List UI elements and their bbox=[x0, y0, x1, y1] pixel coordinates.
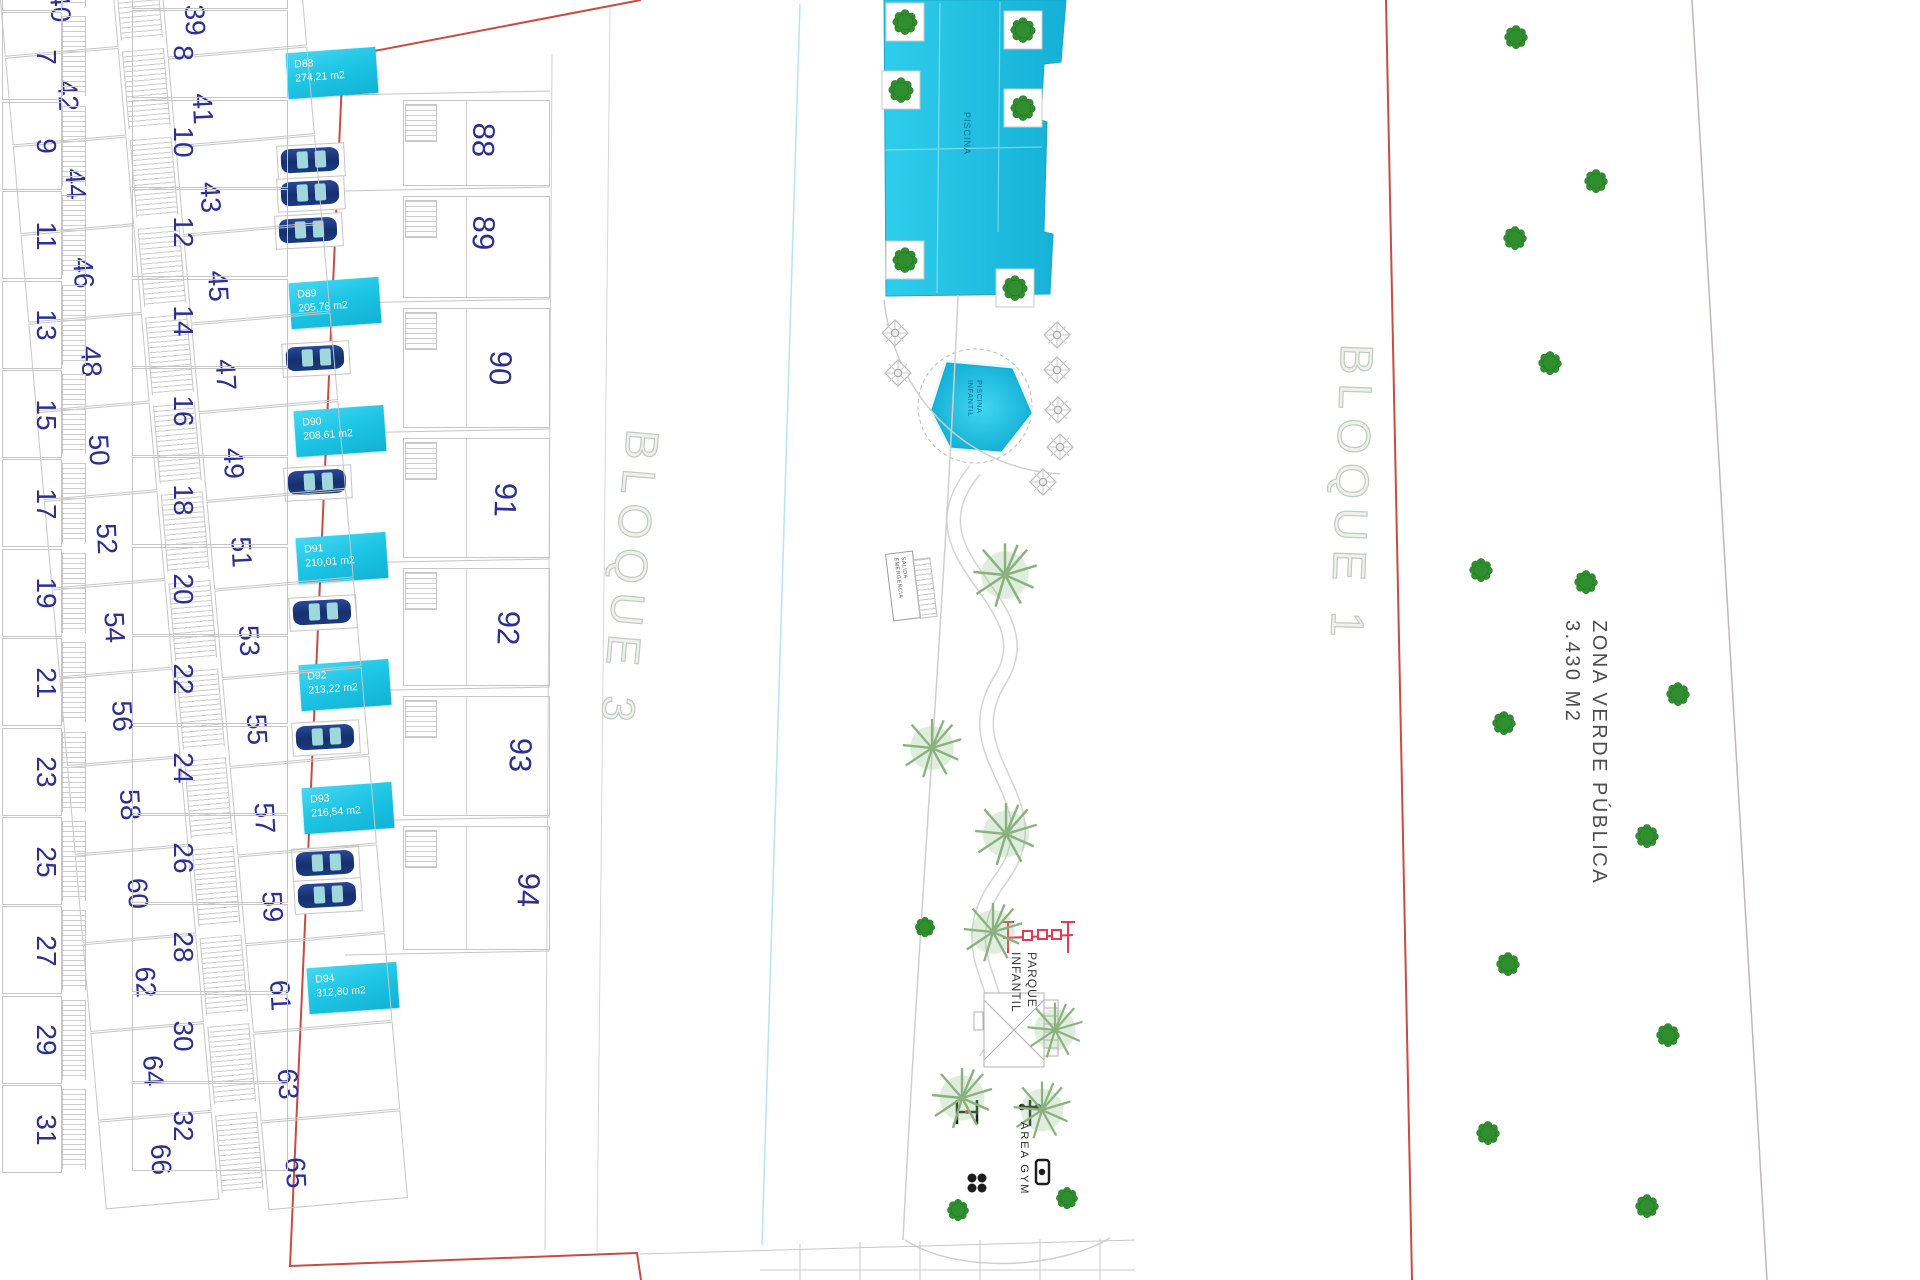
garage-stairs-hatch bbox=[405, 700, 437, 738]
parasol-icon bbox=[882, 320, 908, 346]
unit-number: 26 bbox=[167, 835, 199, 881]
unit-cell bbox=[132, 904, 288, 992]
kids-pool-label: PISCINA INFANTIL bbox=[966, 380, 984, 417]
tree-icon bbox=[1539, 351, 1562, 374]
stairs-hatch bbox=[62, 1000, 86, 1080]
unit-number: 14 bbox=[167, 298, 199, 344]
parasol-icon bbox=[1045, 397, 1071, 423]
unit-cell bbox=[132, 636, 288, 724]
unit-cell bbox=[132, 368, 288, 456]
unit-cell bbox=[132, 815, 288, 903]
unit-number: 11 bbox=[30, 213, 62, 259]
unit-number: 12 bbox=[167, 209, 199, 255]
kids-pool-label-line1: PISCINA bbox=[975, 380, 984, 417]
unit-number: 13 bbox=[30, 302, 62, 348]
tree-icon bbox=[1667, 682, 1690, 705]
unit-number: 19 bbox=[30, 570, 62, 616]
unit-cell bbox=[132, 100, 288, 188]
unit-number: 10 bbox=[167, 119, 199, 165]
sketch-tree-icon bbox=[932, 1068, 992, 1128]
garage-stairs-hatch bbox=[405, 200, 437, 238]
green-zone-area: 3.430 M2 bbox=[1558, 620, 1585, 885]
stairs-hatch bbox=[62, 16, 86, 96]
stairs-hatch bbox=[62, 821, 86, 901]
tree-icon bbox=[1477, 1121, 1500, 1144]
emergency-exit-label: SALIDA EMERGENCIA bbox=[892, 556, 911, 598]
unit-number: 32 bbox=[167, 1103, 199, 1149]
survey-line bbox=[1692, 0, 1767, 1280]
unit-number: 7 bbox=[30, 34, 62, 80]
tree-icon bbox=[1585, 169, 1608, 192]
unit-cell bbox=[132, 10, 288, 98]
parasol-icon bbox=[1047, 434, 1073, 460]
bottom-buildings-outline bbox=[640, 1238, 1135, 1280]
house-inner-wall bbox=[466, 439, 467, 557]
stairs-hatch bbox=[62, 1089, 86, 1169]
unit-cell bbox=[132, 457, 288, 545]
parasol-icon bbox=[1044, 357, 1070, 383]
sketch-tree-icon bbox=[903, 719, 961, 777]
unit-number: 22 bbox=[167, 656, 199, 702]
stairs-hatch bbox=[62, 106, 86, 186]
playground-label-line1: PARQUE bbox=[1024, 952, 1040, 1013]
unit-number: 17 bbox=[30, 481, 62, 527]
tree-icon bbox=[1505, 25, 1528, 48]
garage-stairs-hatch bbox=[405, 104, 437, 142]
sketch-tree-icon bbox=[975, 803, 1037, 865]
tree-icon bbox=[1497, 952, 1520, 975]
house-inner-wall bbox=[466, 569, 467, 685]
stairs-hatch bbox=[62, 910, 86, 990]
utility-line bbox=[762, 4, 800, 1245]
unit-number: 16 bbox=[167, 388, 199, 434]
tree-icon bbox=[1056, 1187, 1077, 1209]
site-boundary-right bbox=[1386, 0, 1412, 1280]
house-inner-wall bbox=[466, 309, 467, 427]
tree-icon bbox=[1636, 824, 1659, 847]
playground-label-line2: INFANTIL bbox=[1008, 952, 1024, 1013]
stairs-hatch bbox=[62, 642, 86, 722]
tree-icon bbox=[1636, 1194, 1659, 1217]
tree-icon bbox=[1657, 1023, 1680, 1046]
unit-cell bbox=[132, 189, 288, 277]
unit-number: 25 bbox=[30, 839, 62, 885]
tree-icon bbox=[1493, 711, 1516, 734]
stairs-hatch bbox=[62, 195, 86, 275]
unit-number: 50 bbox=[81, 426, 115, 474]
unit-number: 24 bbox=[167, 745, 199, 791]
unit-cell bbox=[2, 0, 62, 11]
unit-cell bbox=[132, 547, 288, 635]
house-inner-wall bbox=[466, 697, 467, 815]
garage-stairs-hatch bbox=[405, 442, 437, 480]
garage-stairs-hatch bbox=[405, 830, 437, 868]
tree-icon bbox=[1470, 558, 1493, 581]
unit-cell bbox=[132, 726, 288, 814]
stairs-hatch bbox=[62, 553, 86, 633]
green-zone-label: ZONA VERDE PÚBLICA 3.430 M2 bbox=[1558, 620, 1612, 885]
stairs-hatch bbox=[62, 463, 86, 543]
unit-cell bbox=[132, 0, 288, 9]
tree-icon bbox=[1575, 570, 1598, 593]
garage-stairs-hatch bbox=[405, 312, 437, 350]
playground-label: PARQUE INFANTIL bbox=[1008, 952, 1040, 1013]
gym-area-label: AREA GYM bbox=[1018, 1122, 1030, 1195]
unit-number: 18 bbox=[167, 477, 199, 523]
parasol-icon bbox=[1044, 322, 1070, 348]
unit-number: 21 bbox=[30, 660, 62, 706]
unit-number: 23 bbox=[30, 749, 62, 795]
stairs-hatch bbox=[62, 732, 86, 812]
house-inner-wall bbox=[466, 197, 467, 297]
green-zone-title: ZONA VERDE PÚBLICA bbox=[1585, 620, 1612, 885]
unit-number: 30 bbox=[167, 1013, 199, 1059]
unit-cell bbox=[132, 994, 288, 1082]
unit-number: 8 bbox=[167, 30, 199, 76]
tree-icon bbox=[947, 1199, 968, 1221]
unit-number: 9 bbox=[30, 123, 62, 169]
unit-number: 28 bbox=[167, 924, 199, 970]
parasol-icon bbox=[885, 360, 911, 386]
stairs-hatch bbox=[62, 285, 86, 365]
tree-icon bbox=[915, 917, 935, 937]
unit-number: 52 bbox=[89, 515, 123, 563]
unit-number: 54 bbox=[97, 604, 131, 652]
house-inner-wall bbox=[466, 101, 467, 185]
site-plan: BLOQUE 3 BLOQUE 1 PISCINA PISCINA INFANT… bbox=[0, 0, 1920, 1280]
unit-number: 20 bbox=[167, 566, 199, 612]
tree-icon bbox=[1504, 226, 1527, 249]
pool-label: PISCINA bbox=[962, 112, 972, 155]
kids-pool-label-line2: INFANTIL bbox=[966, 380, 975, 417]
unit-number: 31 bbox=[30, 1107, 62, 1153]
stairs-hatch bbox=[62, 0, 86, 7]
stairs-hatch bbox=[62, 374, 86, 454]
garage-stairs-hatch bbox=[405, 572, 437, 610]
unit-number: 29 bbox=[30, 1017, 62, 1063]
unit-number: 15 bbox=[30, 392, 62, 438]
house-inner-wall bbox=[466, 827, 467, 949]
unit-cell bbox=[132, 1083, 288, 1171]
unit-number: 27 bbox=[30, 928, 62, 974]
unit-cell bbox=[132, 279, 288, 367]
